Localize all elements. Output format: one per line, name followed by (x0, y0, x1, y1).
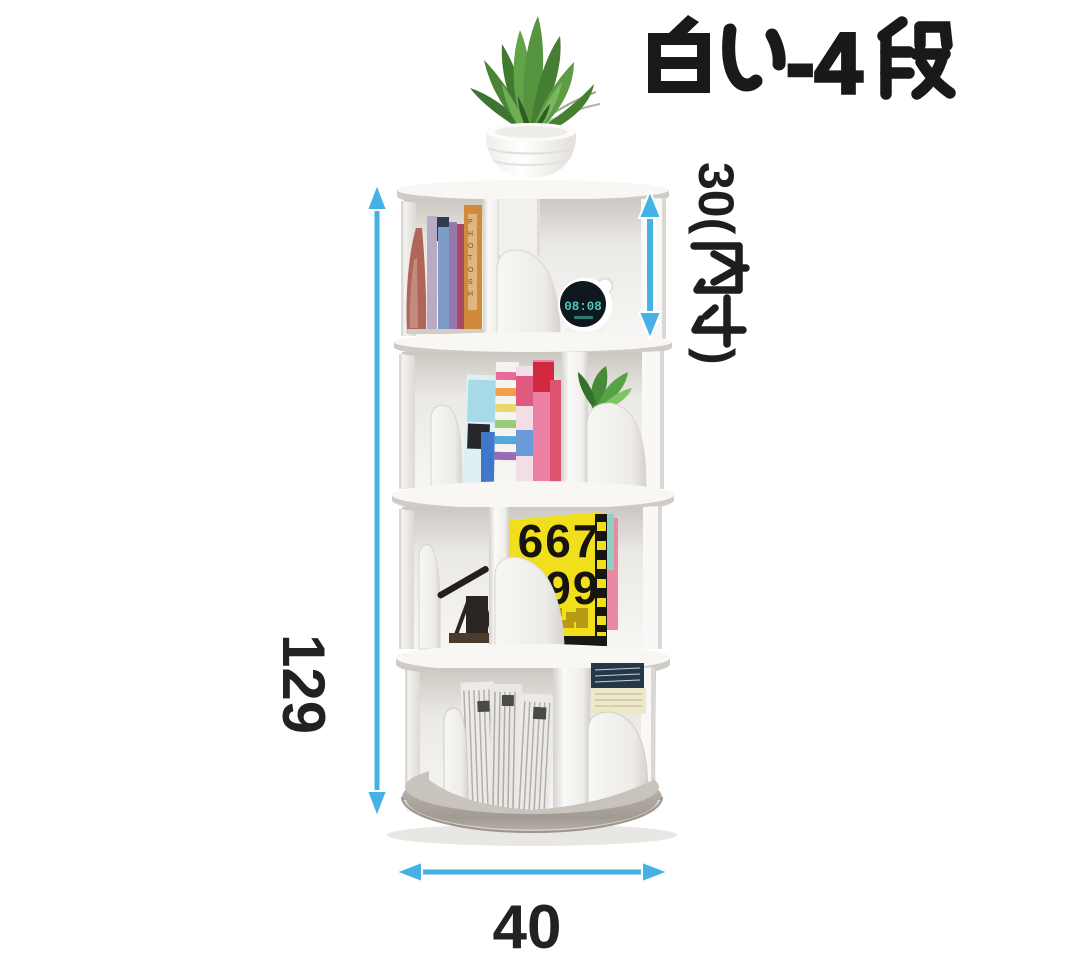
svg-text:S: S (468, 279, 473, 286)
svg-text:129: 129 (270, 634, 337, 734)
svg-text:-4: -4 (786, 16, 863, 112)
svg-text:H: H (468, 231, 473, 238)
svg-text:08:08: 08:08 (564, 300, 602, 314)
svg-text:O: O (468, 243, 474, 250)
svg-text:O: O (468, 267, 474, 274)
svg-text:40: 40 (493, 893, 562, 962)
svg-text:P: P (468, 219, 473, 226)
svg-text:667: 667 (518, 515, 601, 567)
svg-text:30(: 30( (688, 162, 744, 235)
svg-text:): ) (688, 348, 744, 365)
svg-text:T: T (468, 255, 473, 262)
svg-text:H: H (468, 291, 473, 298)
